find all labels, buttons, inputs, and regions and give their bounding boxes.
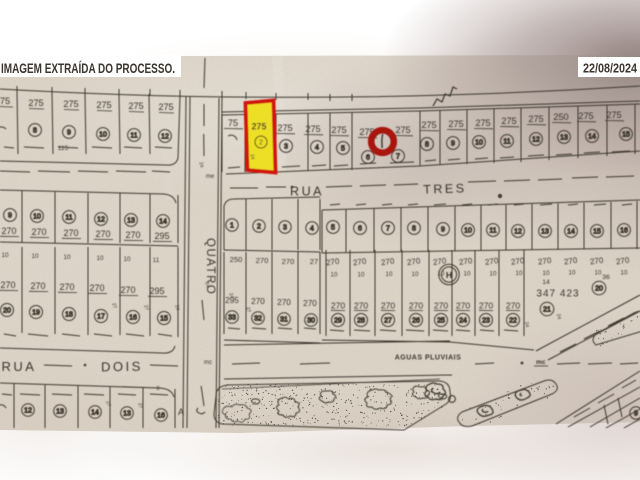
svg-text:270: 270 xyxy=(615,255,630,266)
svg-text:9: 9 xyxy=(441,227,445,234)
svg-text:A: A xyxy=(178,407,184,417)
svg-text:270: 270 xyxy=(282,257,295,266)
svg-text:270: 270 xyxy=(409,301,424,311)
svg-text:15: 15 xyxy=(622,132,630,139)
svg-text:me: me xyxy=(206,174,215,180)
svg-text:11: 11 xyxy=(65,215,72,222)
svg-text:33: 33 xyxy=(228,315,236,322)
svg-text:H: H xyxy=(446,270,452,280)
svg-text:18: 18 xyxy=(65,312,73,319)
svg-text:9: 9 xyxy=(8,213,12,220)
svg-text:14: 14 xyxy=(588,134,596,141)
svg-text:mc: mc xyxy=(204,360,212,366)
svg-text:28: 28 xyxy=(357,318,365,325)
svg-text:13: 13 xyxy=(123,411,131,418)
svg-text:30: 30 xyxy=(307,318,315,325)
svg-text:250: 250 xyxy=(553,112,568,122)
svg-text:270: 270 xyxy=(510,256,525,267)
svg-text:DOIS: DOIS xyxy=(101,359,143,375)
svg-text:347 423: 347 423 xyxy=(536,289,579,300)
svg-text:295: 295 xyxy=(149,286,164,296)
svg-text:6: 6 xyxy=(358,226,362,233)
svg-text:29: 29 xyxy=(334,318,342,325)
svg-text:AGUAS PLUVIAIS: AGUAS PLUVIAIS xyxy=(395,355,462,362)
svg-text:270: 270 xyxy=(406,256,421,267)
svg-text:10: 10 xyxy=(99,132,107,139)
svg-text:12: 12 xyxy=(514,229,522,236)
svg-text:11: 11 xyxy=(503,139,510,146)
svg-text:10: 10 xyxy=(569,270,576,277)
svg-text:10: 10 xyxy=(31,253,39,260)
svg-text:270: 270 xyxy=(89,283,104,293)
svg-text:275: 275 xyxy=(395,125,410,135)
svg-text:5: 5 xyxy=(341,146,345,153)
svg-text:270: 270 xyxy=(506,301,521,311)
svg-text:275: 275 xyxy=(578,111,593,121)
svg-text:22: 22 xyxy=(509,318,517,325)
svg-text:14: 14 xyxy=(91,410,99,417)
svg-text:270: 270 xyxy=(484,256,499,267)
svg-text:15: 15 xyxy=(160,316,168,323)
svg-text:19: 19 xyxy=(32,310,40,317)
svg-text:270: 270 xyxy=(0,280,15,290)
svg-text:12: 12 xyxy=(24,408,32,415)
svg-text:10: 10 xyxy=(595,270,602,277)
svg-text:RUA: RUA xyxy=(2,359,37,374)
svg-text:10: 10 xyxy=(386,271,393,278)
svg-text:10: 10 xyxy=(621,269,628,276)
svg-text:270: 270 xyxy=(63,228,78,238)
svg-text:10: 10 xyxy=(543,270,550,277)
svg-text:275: 275 xyxy=(501,116,516,126)
svg-text:270: 270 xyxy=(381,301,396,311)
svg-text:295: 295 xyxy=(154,231,169,241)
svg-text:270: 270 xyxy=(59,282,74,292)
svg-text:16: 16 xyxy=(157,413,165,420)
svg-text:115: 115 xyxy=(58,145,69,152)
svg-text:270: 270 xyxy=(125,230,140,240)
svg-text:275: 275 xyxy=(606,110,621,120)
svg-text:10: 10 xyxy=(33,214,41,221)
svg-text:270: 270 xyxy=(380,256,395,267)
svg-text:1: 1 xyxy=(230,223,234,230)
svg-text:270: 270 xyxy=(325,257,340,268)
svg-text:270: 270 xyxy=(563,256,578,267)
svg-text:270: 270 xyxy=(589,256,604,267)
svg-text:8: 8 xyxy=(33,128,37,135)
svg-text:8: 8 xyxy=(157,386,160,392)
svg-text:10: 10 xyxy=(331,272,338,279)
svg-text:275: 275 xyxy=(158,102,173,112)
svg-text:2: 2 xyxy=(259,140,263,147)
svg-text:11: 11 xyxy=(130,133,137,140)
svg-text:275: 275 xyxy=(475,118,490,128)
svg-text:5: 5 xyxy=(331,225,335,232)
svg-text:275: 275 xyxy=(63,99,78,109)
svg-text:IMAGEM EXTRAÍDA DO PROCESSO.: IMAGEM EXTRAÍDA DO PROCESSO. xyxy=(1,60,175,76)
svg-text:14: 14 xyxy=(159,219,167,226)
svg-text:270: 270 xyxy=(458,256,473,267)
svg-text:16: 16 xyxy=(129,315,137,322)
svg-text:15: 15 xyxy=(593,229,601,236)
svg-text:250: 250 xyxy=(230,255,243,264)
svg-text:17: 17 xyxy=(97,314,105,321)
svg-text:16: 16 xyxy=(620,228,628,235)
svg-text:23: 23 xyxy=(482,318,490,325)
svg-text:10: 10 xyxy=(96,255,104,262)
svg-text:10: 10 xyxy=(412,271,419,278)
svg-text:21: 21 xyxy=(543,307,551,314)
svg-text:275: 275 xyxy=(331,125,346,135)
svg-text:2: 2 xyxy=(257,224,261,231)
svg-text:10: 10 xyxy=(63,254,71,261)
svg-text:8: 8 xyxy=(412,226,416,233)
svg-text:9: 9 xyxy=(451,141,455,148)
svg-text:11: 11 xyxy=(489,228,496,235)
svg-text:26: 26 xyxy=(412,318,420,325)
svg-text:275: 275 xyxy=(28,98,43,108)
svg-text:20: 20 xyxy=(3,308,11,315)
svg-text:270: 270 xyxy=(120,285,135,295)
svg-text:275: 275 xyxy=(421,120,436,130)
svg-text:7: 7 xyxy=(396,154,400,161)
svg-text:75: 75 xyxy=(228,118,238,128)
svg-text:13: 13 xyxy=(56,409,64,416)
svg-text:10: 10 xyxy=(464,228,472,235)
svg-text:4: 4 xyxy=(315,145,319,152)
svg-text:275: 275 xyxy=(96,100,111,110)
svg-text:75: 75 xyxy=(0,96,10,106)
svg-text:275: 275 xyxy=(528,114,543,124)
svg-text:10: 10 xyxy=(490,270,497,277)
svg-text:mc: mc xyxy=(536,359,546,366)
svg-text:275: 275 xyxy=(252,122,267,132)
svg-text:270: 270 xyxy=(277,298,291,307)
svg-text:TRES: TRES xyxy=(423,181,467,197)
svg-text:270: 270 xyxy=(95,229,110,239)
svg-text:270: 270 xyxy=(537,256,552,267)
svg-text:31: 31 xyxy=(280,317,288,324)
svg-text:32: 32 xyxy=(254,316,262,323)
svg-text:9: 9 xyxy=(67,130,71,137)
svg-text:RUA: RUA xyxy=(290,185,324,199)
svg-text:270: 270 xyxy=(1,226,16,236)
svg-text:10: 10 xyxy=(475,140,483,147)
svg-text:270: 270 xyxy=(456,301,471,311)
svg-text:12: 12 xyxy=(532,137,540,144)
svg-text:270: 270 xyxy=(30,281,45,291)
svg-text:275: 275 xyxy=(448,119,463,129)
svg-text:270: 270 xyxy=(354,301,369,311)
svg-text:12: 12 xyxy=(161,134,169,141)
svg-text:270: 270 xyxy=(31,227,46,237)
svg-text:36: 36 xyxy=(602,274,610,281)
svg-text:9: 9 xyxy=(634,411,638,418)
svg-text:11: 11 xyxy=(153,257,160,264)
svg-text:270: 270 xyxy=(434,301,449,311)
svg-text:8: 8 xyxy=(425,142,429,149)
svg-text:13: 13 xyxy=(541,229,549,236)
svg-text:270: 270 xyxy=(479,301,494,311)
svg-text:24: 24 xyxy=(459,318,467,325)
svg-text:270: 270 xyxy=(303,299,317,308)
svg-text:10: 10 xyxy=(1,252,9,259)
svg-text:270: 270 xyxy=(256,256,269,265)
svg-text:13: 13 xyxy=(560,135,568,142)
svg-text:270: 270 xyxy=(352,256,367,267)
svg-text:10: 10 xyxy=(464,271,471,278)
svg-text:14: 14 xyxy=(542,279,550,286)
svg-text:7: 7 xyxy=(386,226,390,233)
svg-text:10: 10 xyxy=(516,270,523,277)
svg-text:270: 270 xyxy=(251,297,265,306)
svg-text:275: 275 xyxy=(277,123,292,133)
svg-text:25: 25 xyxy=(437,318,445,325)
svg-text:12: 12 xyxy=(97,217,105,224)
svg-text:4: 4 xyxy=(310,226,314,233)
svg-text:275: 275 xyxy=(305,124,320,134)
svg-text:22/08/2024: 22/08/2024 xyxy=(583,61,638,76)
svg-text:10: 10 xyxy=(123,256,131,263)
svg-text:20: 20 xyxy=(595,286,603,293)
svg-text:6: 6 xyxy=(366,155,370,162)
svg-text:10: 10 xyxy=(358,271,365,278)
svg-text:3: 3 xyxy=(283,225,287,232)
svg-text:27: 27 xyxy=(384,318,392,325)
svg-text:13: 13 xyxy=(127,218,135,225)
svg-text:270: 270 xyxy=(331,301,346,311)
svg-text:275: 275 xyxy=(128,101,143,111)
svg-text:27: 27 xyxy=(310,257,318,266)
svg-text:14: 14 xyxy=(567,229,575,236)
svg-text:3: 3 xyxy=(284,144,288,151)
